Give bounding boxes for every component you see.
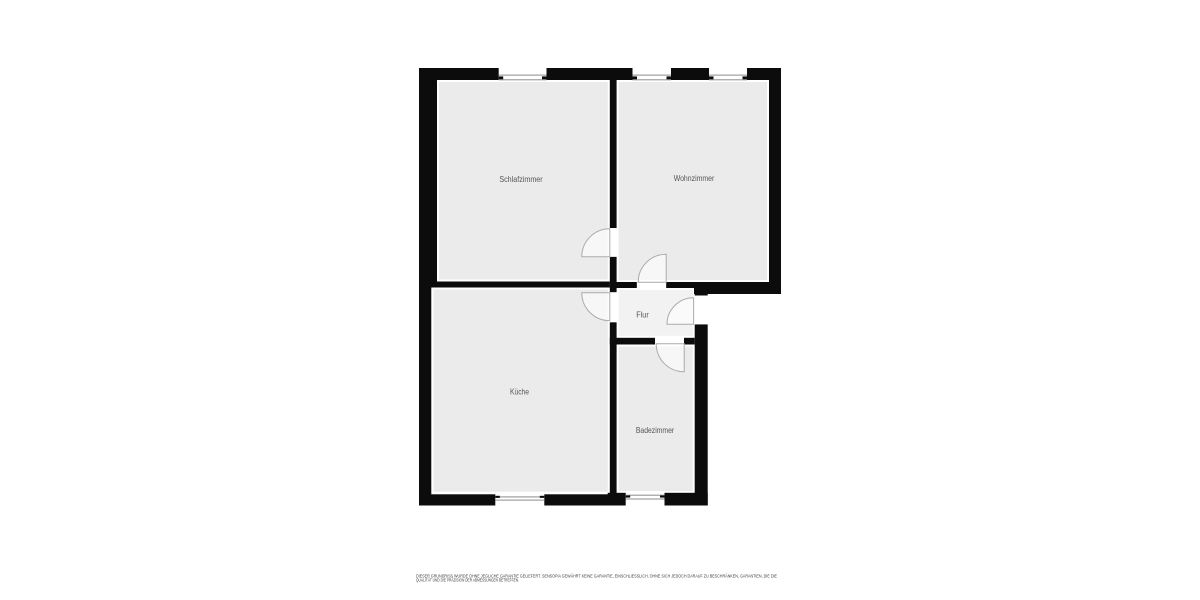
svg-text:Schlafzimmer: Schlafzimmer (499, 175, 543, 184)
svg-text:Flur: Flur (636, 311, 649, 320)
svg-text:QUALITÄT UND DIE PRÄZISION DER: QUALITÄT UND DIE PRÄZISION DER ABMESSUNG… (416, 578, 519, 583)
svg-text:Küche: Küche (510, 388, 529, 397)
svg-text:Wohnzimmer: Wohnzimmer (674, 174, 715, 183)
svg-text:Badezimmer: Badezimmer (636, 426, 675, 435)
